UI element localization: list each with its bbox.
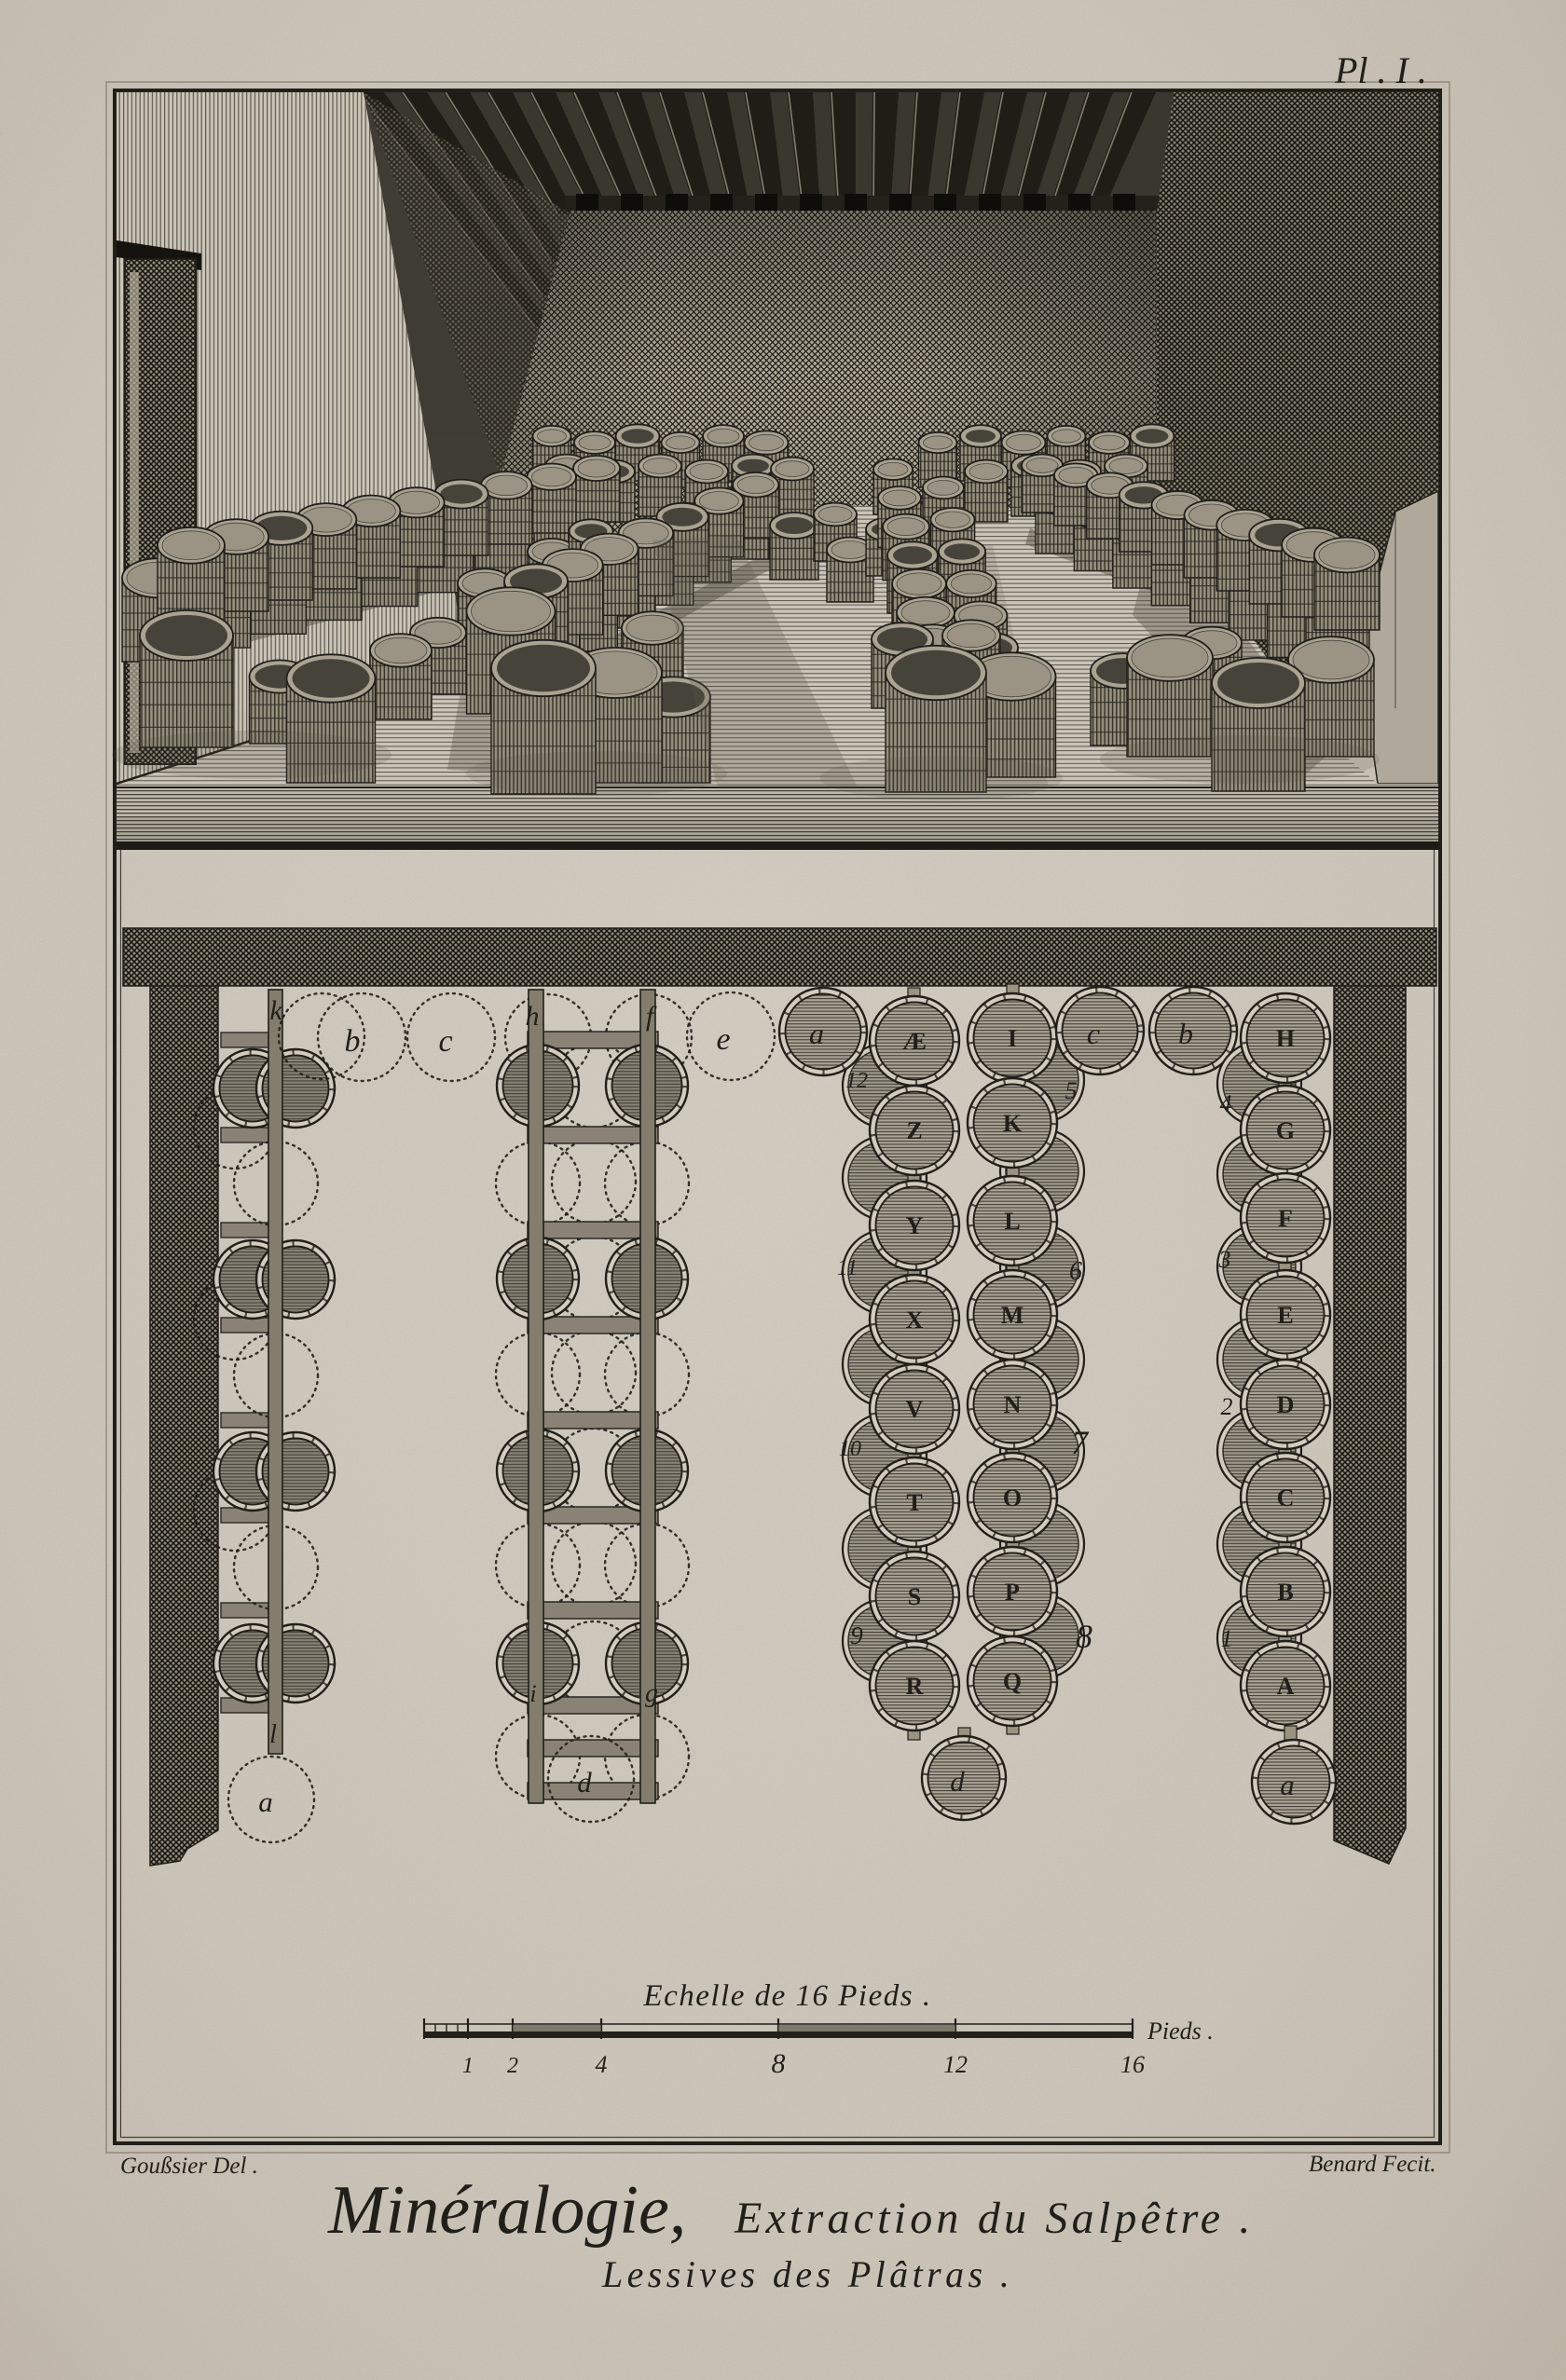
svg-text:L: L: [1004, 1208, 1020, 1235]
svg-text:d: d: [950, 1765, 965, 1798]
svg-text:Extraction du Salpêtre .: Extraction du Salpêtre .: [734, 2194, 1255, 2243]
svg-text:6: 6: [1069, 1257, 1082, 1286]
svg-text:N: N: [1004, 1391, 1022, 1418]
svg-text:Echelle de 16 Pieds .: Echelle de 16 Pieds .: [642, 1979, 931, 2013]
svg-text:3: 3: [1218, 1246, 1231, 1273]
svg-text:5: 5: [1065, 1077, 1078, 1104]
svg-text:l: l: [269, 1720, 277, 1749]
svg-text:i: i: [529, 1680, 536, 1707]
svg-text:Æ: Æ: [902, 1028, 927, 1055]
svg-text:K: K: [1003, 1110, 1023, 1137]
svg-text:7: 7: [1071, 1424, 1090, 1461]
svg-text:a: a: [258, 1785, 273, 1818]
svg-text:4: 4: [1220, 1090, 1232, 1117]
svg-text:T: T: [906, 1489, 922, 1516]
svg-text:Lessives des Plâtras .: Lessives des Plâtras .: [601, 2253, 1013, 2295]
svg-text:c: c: [1087, 1017, 1100, 1050]
svg-text:b: b: [345, 1024, 361, 1059]
svg-text:e: e: [716, 1022, 730, 1057]
svg-text:9: 9: [850, 1621, 863, 1649]
svg-text:Minéralogie,: Minéralogie,: [327, 2172, 686, 2249]
svg-text:2: 2: [1221, 1393, 1233, 1420]
svg-text:X: X: [906, 1306, 924, 1334]
svg-text:2: 2: [507, 2054, 518, 2078]
svg-text:V: V: [906, 1396, 924, 1423]
svg-text:d: d: [577, 1766, 592, 1799]
svg-text:P: P: [1005, 1579, 1020, 1606]
svg-text:D: D: [1277, 1391, 1295, 1418]
svg-text:R: R: [906, 1673, 924, 1700]
svg-text:G: G: [1276, 1117, 1295, 1144]
svg-text:a: a: [809, 1017, 824, 1050]
svg-text:11: 11: [837, 1256, 858, 1280]
svg-text:10: 10: [839, 1437, 861, 1461]
svg-text:g: g: [645, 1679, 658, 1708]
svg-text:Benard Fecit.: Benard Fecit.: [1309, 2152, 1436, 2177]
svg-text:A: A: [1277, 1673, 1295, 1700]
svg-text:h: h: [526, 1001, 540, 1032]
svg-text:H: H: [1276, 1025, 1295, 1052]
svg-text:Z: Z: [906, 1117, 922, 1144]
svg-text:b: b: [1178, 1017, 1193, 1050]
svg-text:16: 16: [1120, 2051, 1145, 2078]
svg-text:12: 12: [943, 2051, 968, 2078]
svg-text:12: 12: [845, 1069, 868, 1093]
svg-text:B: B: [1277, 1579, 1293, 1606]
svg-text:F: F: [1278, 1205, 1293, 1232]
svg-text:1: 1: [462, 2054, 474, 2078]
svg-text:Goußsier Del .: Goußsier Del .: [120, 2154, 258, 2179]
svg-text:Pl . I .: Pl . I .: [1334, 49, 1427, 91]
svg-text:Y: Y: [906, 1212, 924, 1239]
svg-text:C: C: [1277, 1484, 1295, 1511]
svg-text:c: c: [438, 1024, 452, 1059]
svg-text:I: I: [1008, 1025, 1017, 1052]
svg-text:Q: Q: [1003, 1668, 1022, 1695]
svg-text:M: M: [1001, 1302, 1024, 1329]
svg-text:S: S: [908, 1583, 921, 1610]
svg-text:E: E: [1277, 1302, 1293, 1329]
svg-text:a: a: [1280, 1769, 1295, 1801]
svg-text:8: 8: [1076, 1618, 1092, 1655]
svg-text:8: 8: [772, 2048, 786, 2079]
svg-text:Pieds .: Pieds .: [1147, 2018, 1214, 2045]
svg-text:O: O: [1003, 1484, 1022, 1511]
svg-text:1: 1: [1221, 1625, 1233, 1652]
svg-text:4: 4: [596, 2051, 608, 2078]
